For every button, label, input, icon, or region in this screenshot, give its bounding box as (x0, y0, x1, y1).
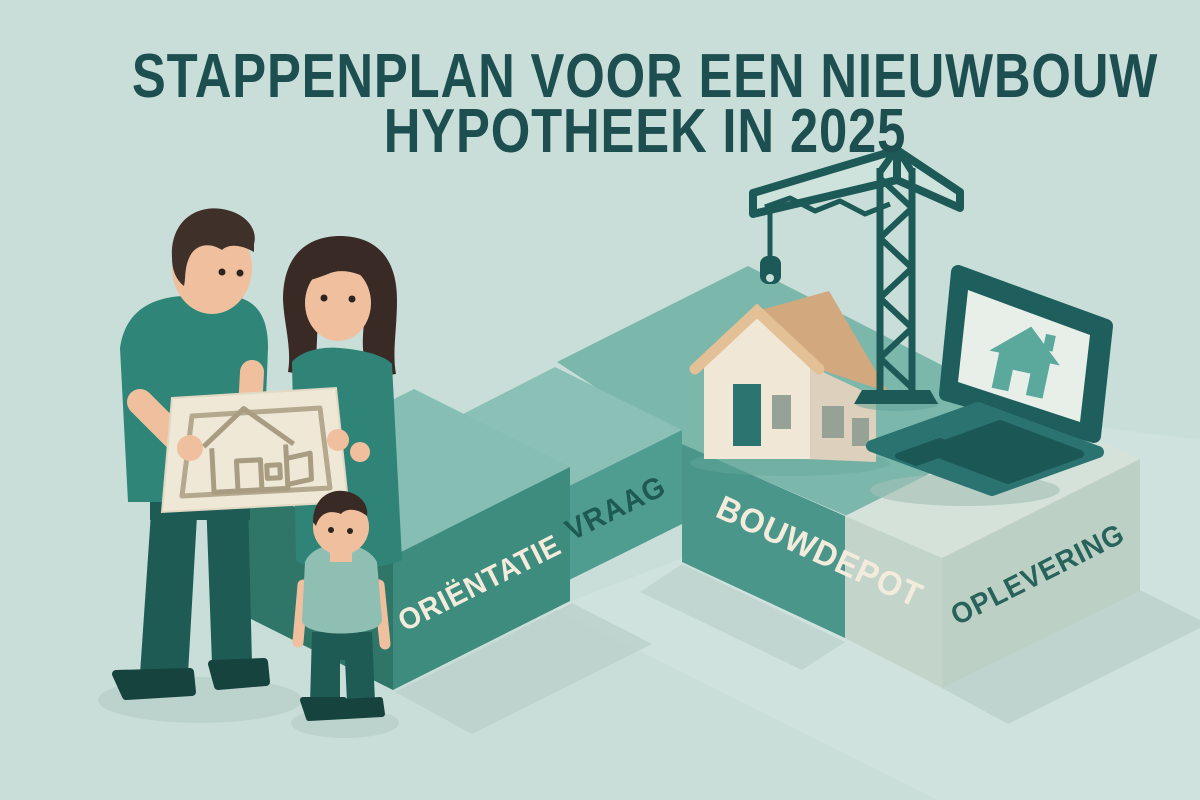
illustration-canvas: ORIËNTATIE VRAAG BOUWDEPOT OPLEVERING (0, 0, 1200, 800)
child-eye-left (328, 527, 334, 533)
woman-hand-right (350, 442, 370, 462)
crane-hook-hole (766, 274, 774, 282)
child-eye-right (347, 528, 353, 534)
house-door (733, 384, 761, 446)
house-side-window-2 (852, 418, 869, 446)
man-leg-right (206, 498, 252, 664)
house-side-window (822, 406, 844, 438)
woman-eye-right (349, 296, 356, 303)
crane-base (854, 390, 938, 404)
man-eye-right (237, 270, 244, 277)
woman-eye-left (321, 295, 328, 302)
woman-hand-left (327, 429, 349, 451)
house-front-window (772, 395, 791, 429)
man-shoe-right (212, 662, 266, 686)
man-hand (177, 435, 203, 461)
child-shoe-right (342, 700, 382, 716)
child-arm-left (298, 585, 303, 642)
infographic-stappenplan: ORIËNTATIE VRAAG BOUWDEPOT OPLEVERING (0, 0, 1200, 800)
title-line-2: HYPOTHEEK IN 2025 (384, 97, 906, 166)
man-eye-left (219, 269, 226, 276)
man-shoe-left (116, 672, 192, 696)
